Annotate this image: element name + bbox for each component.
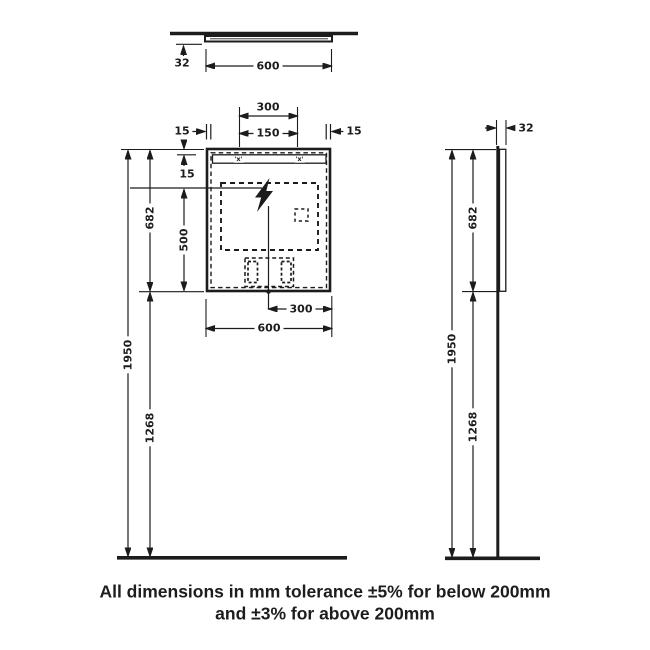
front-view	[117, 107, 347, 558]
dim-side-bottom-clearance: 1268	[468, 409, 479, 446]
side-view-mirror-profile	[500, 149, 506, 291]
dim-side-overall-height: 1950	[447, 331, 458, 368]
dim-inset-right: 15	[343, 126, 364, 137]
dim-mirror-width: 600	[255, 323, 284, 334]
fixing-mark-left: 'x'	[233, 156, 243, 163]
dim-inset-left: 15	[171, 126, 192, 137]
dim-zone-height: 500	[179, 226, 190, 255]
dim-side-mirror-height: 682	[468, 204, 479, 233]
fixing-mark-right: 'x'	[294, 156, 304, 163]
dim-center-offset: 300	[287, 304, 316, 315]
dim-mirror-height: 682	[145, 204, 156, 233]
front-view-light-strip	[213, 155, 327, 163]
dim-overall-height: 1950	[123, 337, 134, 374]
dim-bottom-clearance: 1268	[145, 410, 156, 447]
dim-fixing-span: 300	[254, 102, 283, 113]
dim-side-depth: 32	[515, 123, 536, 134]
caption-line-1: All dimensions in mm tolerance ±5% for b…	[99, 583, 550, 601]
caption-line-2: and ±3% for above 200mm	[215, 605, 435, 623]
dim-fixing-half: 150	[254, 128, 283, 139]
technical-drawing-page: 32 600 300 150 15 15 15 682 500 1950 126…	[0, 0, 650, 650]
dim-strip-offset: 15	[176, 169, 197, 180]
dim-top-width: 600	[254, 61, 283, 72]
front-view-cable-entry-dot	[266, 289, 271, 294]
drawing-linework	[0, 0, 650, 650]
dim-top-thickness: 32	[171, 58, 192, 69]
side-view	[445, 120, 540, 558]
